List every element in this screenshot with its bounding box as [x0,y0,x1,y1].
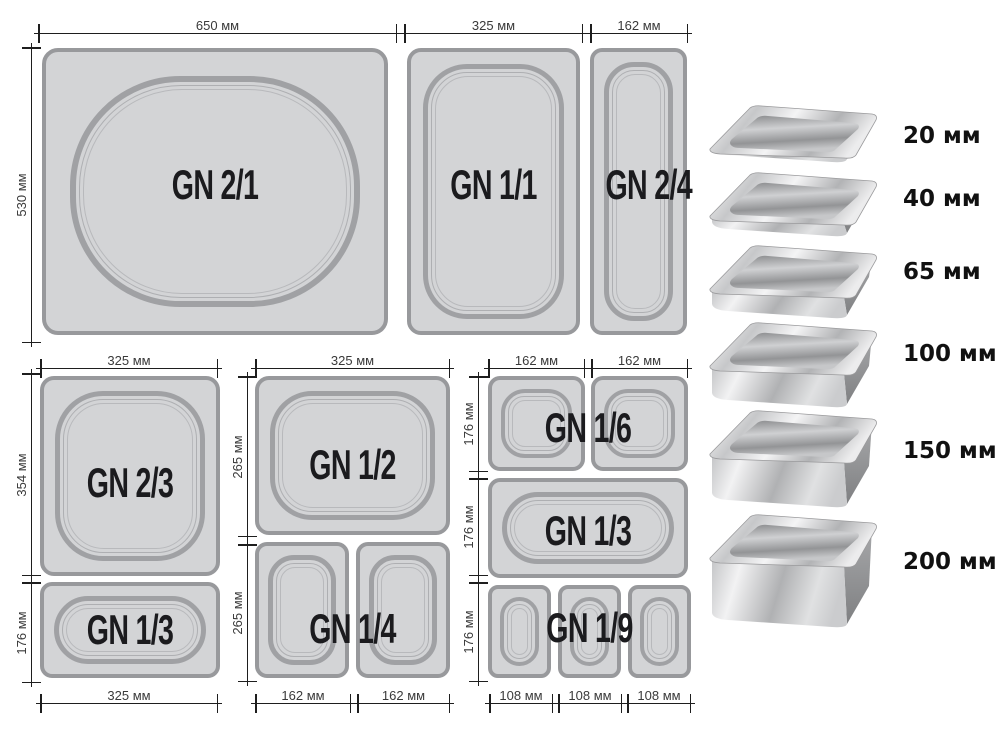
dim-right-top-b: 162 мм [591,353,688,369]
dim-354: 354 мм [12,373,32,576]
depth-label-200: 200 мм [903,549,998,575]
dim-label: 650 мм [38,18,397,33]
dim-label: 325 мм [404,18,583,33]
dim-108-c: 108 мм [627,688,691,704]
dim-mid-bottom-a: 162 мм [255,688,351,704]
dim-label: 162 мм [591,353,688,368]
dim-265-a: 265 мм [228,376,248,537]
dim-label: 108 мм [489,688,553,703]
dim-left-530: 530 мм [12,47,32,343]
dim-label: 162 мм [590,18,688,33]
dim-108-a: 108 мм [489,688,553,704]
depth-label-40: 40 мм [903,186,998,212]
pan-label: GN 2/3 [69,462,191,504]
dim-top-650: 650 мм [38,18,397,34]
pan-photo-200mm [706,512,881,632]
dim-label: 108 мм [627,688,691,703]
dim-label: 176 мм [14,611,29,654]
dim-label: 162 мм [255,688,351,703]
dim-label: 265 мм [230,435,245,478]
dim-label: 325 мм [255,353,450,368]
dim-left-group-top: 325 мм [40,353,218,369]
pan-label: GN 1/4 [286,608,419,650]
dim-label: 325 мм [40,688,218,703]
pan-label: GN 1/9 [520,607,658,649]
pan-label: GN 1/1 [435,164,553,206]
dim-label: 530 мм [14,173,29,216]
dim-176-rc: 176 мм [459,582,479,682]
dim-label: 354 мм [14,453,29,496]
dim-176-left: 176 мм [12,582,32,683]
pan-photo-100mm [706,320,881,412]
dim-label: 176 мм [461,610,476,653]
dim-label: 325 мм [40,353,218,368]
dim-label: 176 мм [461,505,476,548]
dim-left-group-bottom: 325 мм [40,688,218,704]
dim-label: 162 мм [357,688,450,703]
dim-label: 265 мм [230,591,245,634]
dim-265-b: 265 мм [228,544,248,682]
depth-label-65: 65 мм [903,259,998,285]
dim-right-top-a: 162 мм [488,353,585,369]
dim-label: 162 мм [488,353,585,368]
pan-photo-65mm [706,243,881,323]
dim-mid-bottom-b: 162 мм [357,688,450,704]
dim-mid-group-top: 325 мм [255,353,450,369]
gn-size-diagram: 650 мм 325 мм 162 мм 530 мм GN 2/1 GN 1/… [0,0,998,734]
dim-top-162: 162 мм [590,18,688,34]
pan-label: GN 1/3 [69,609,191,651]
dim-176-ra: 176 мм [459,376,479,472]
pan-photo-20mm [706,103,881,167]
pan-label: GN 1/3 [520,510,656,552]
depth-label-100: 100 мм [903,341,998,367]
pan-label: GN 1/6 [520,407,656,449]
dim-label: 176 мм [461,402,476,445]
dim-176-rb: 176 мм [459,478,479,576]
pan-label: GN 1/2 [286,444,419,486]
pan-photo-150mm [706,408,881,512]
dim-label: 108 мм [558,688,622,703]
pan-label: GN 2/4 [606,164,672,206]
dimension-line [34,33,401,34]
depth-label-150: 150 мм [903,438,998,464]
pan-photo-40mm [706,170,881,240]
dim-top-325: 325 мм [404,18,583,34]
dim-108-b: 108 мм [558,688,622,704]
depth-label-20: 20 мм [903,123,998,149]
pan-label: GN 2/1 [97,164,332,206]
